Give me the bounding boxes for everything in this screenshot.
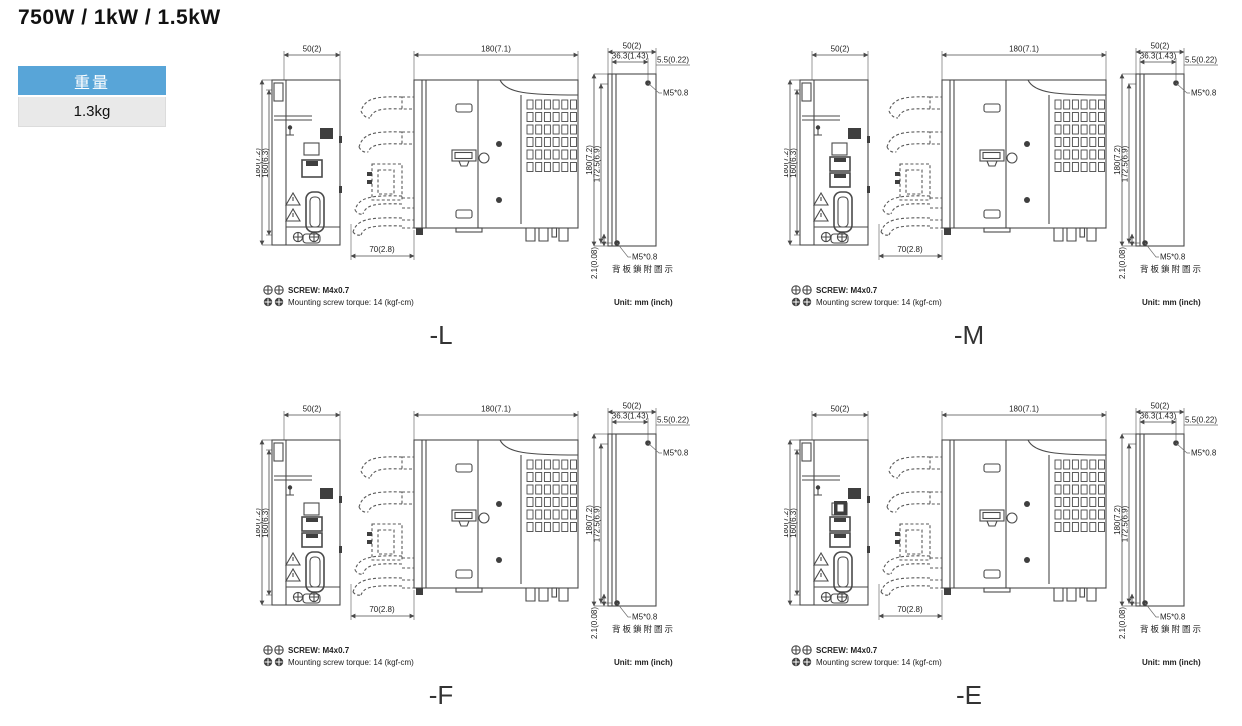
screw-spec-label-top: M5*0.8 xyxy=(663,89,689,98)
dim-side-depth: 180(7.1) xyxy=(1009,45,1039,54)
mounting-slot-bottom xyxy=(984,570,1000,578)
side-view: 180(7.1) 70(2.8) xyxy=(351,405,578,621)
torque-note: Mounting screw torque: 14 (kgf-cm) xyxy=(816,298,942,307)
ventilation-grid xyxy=(1055,460,1105,532)
usb-connector-icon xyxy=(848,488,861,499)
front-view: 50(2) 180(7.2) 160(6.3) xyxy=(256,45,342,246)
usb-connector-icon xyxy=(320,488,333,499)
io-connector xyxy=(306,552,324,592)
weight-table-value: 1.3kg xyxy=(18,97,166,127)
unit-note: Unit: mm (inch) xyxy=(614,298,673,307)
mounting-slot-bottom xyxy=(456,210,472,218)
back-view: 50(2) 36.3(1.43) 5.5(0.22) 180(7.2) 172.… xyxy=(1113,402,1218,640)
back-plate-note: 背板鎖附圖示 xyxy=(612,624,675,634)
ethernet-ports xyxy=(302,517,322,547)
screw-note: SCREW: M4x0.7 xyxy=(816,286,878,295)
side-connector xyxy=(980,510,1017,526)
screw-head-icon xyxy=(264,646,283,654)
dim-front-mount-height: 160(6.3) xyxy=(789,148,798,178)
mounting-slot-top xyxy=(984,464,1000,472)
ground-mark-icon xyxy=(816,125,820,129)
variant-label: -F xyxy=(429,680,454,710)
mounting-notes: SCREW: M4x0.7 Mounting screw torque: 14 … xyxy=(264,286,673,307)
ventilation-grid xyxy=(527,100,577,172)
variant-label: -E xyxy=(956,680,982,710)
page-title: 750W / 1kW / 1.5kW xyxy=(18,6,221,30)
encoder-connector xyxy=(831,234,848,243)
io-connector xyxy=(306,192,324,232)
screw-head-icon xyxy=(264,286,283,294)
unit-note: Unit: mm (inch) xyxy=(1142,298,1201,307)
dimension-panel-F: 50(2) 180(7.2) 160(6.3) xyxy=(256,398,740,716)
front-view: 50(2) 180(7.2) 160(6.3) xyxy=(784,45,870,246)
torque-screw-icon xyxy=(792,658,811,666)
dim-side-depth: 180(7.1) xyxy=(481,405,511,414)
dimension-drawing: 50(2) 180(7.2) 160(6.3) xyxy=(256,398,740,716)
dim-back-hole-span: 172.5(6.9) xyxy=(1121,505,1130,542)
dim-back-hole-x: 36.3(1.43) xyxy=(612,412,649,421)
back-view: 50(2) 36.3(1.43) 5.5(0.22) 180(7.2) 172.… xyxy=(1113,42,1218,280)
dim-back-hole-edge: 5.5(0.22) xyxy=(1185,56,1217,65)
cable-hoses xyxy=(353,97,414,235)
torque-note: Mounting screw torque: 14 (kgf-cm) xyxy=(288,298,414,307)
unit-note: Unit: mm (inch) xyxy=(614,658,673,667)
dim-back-hole-span: 172.5(6.9) xyxy=(1121,145,1130,182)
dim-back-hole-edge: 5.5(0.22) xyxy=(657,416,689,425)
weight-table: 重量 1.3kg xyxy=(18,66,166,127)
mounting-feet xyxy=(944,588,1096,601)
mounting-slot-top xyxy=(984,104,1000,112)
ventilation-grid xyxy=(527,460,577,532)
dim-back-hole-x: 36.3(1.43) xyxy=(1140,52,1177,61)
dimension-drawing: 50(2) 180(7.2) 160(6.3) xyxy=(784,38,1242,356)
dim-back-hole-edge: 5.5(0.22) xyxy=(1185,416,1217,425)
dim-back-hole-span: 172.5(6.9) xyxy=(593,145,602,182)
dim-back-hole-bottom: 2.1(0.08) xyxy=(1118,607,1127,639)
dim-back-hole-bottom: 2.1(0.08) xyxy=(1118,247,1127,279)
side-view: 180(7.1) 70(2.8) xyxy=(879,45,1106,261)
dimension-drawing: 50(2) 180(7.2) 160(6.3) xyxy=(784,398,1242,716)
back-view: 50(2) 36.3(1.43) 5.5(0.22) 180(7.2) 172.… xyxy=(585,42,690,280)
ethernet-ports xyxy=(830,157,850,187)
ground-mark-icon xyxy=(288,125,292,129)
dimension-panel-E: 50(2) 180(7.2) 160(6.3) xyxy=(784,398,1242,716)
dim-back-hole-x: 36.3(1.43) xyxy=(612,52,649,61)
mounting-slot-bottom xyxy=(984,210,1000,218)
variant-label: -M xyxy=(954,320,984,350)
screw-spec-label-bottom: M5*0.8 xyxy=(1160,613,1186,622)
ground-mark-icon xyxy=(816,485,820,489)
cable-hoses xyxy=(881,457,942,595)
display-window xyxy=(304,143,319,155)
dim-front-mount-height: 160(6.3) xyxy=(261,508,270,538)
screw-spec-label-top: M5*0.8 xyxy=(1191,449,1217,458)
screw-spec-label-bottom: M5*0.8 xyxy=(632,253,658,262)
torque-note: Mounting screw torque: 14 (kgf-cm) xyxy=(816,658,942,667)
back-plate-note: 背板鎖附圖示 xyxy=(1140,264,1203,274)
cable-hoses xyxy=(881,97,942,235)
mounting-feet xyxy=(416,228,568,241)
front-view: 50(2) 180(7.2) 160(6.3) xyxy=(784,405,870,606)
aux-connector xyxy=(834,501,847,515)
display-window xyxy=(832,143,847,155)
unit-note: Unit: mm (inch) xyxy=(1142,658,1201,667)
screw-note: SCREW: M4x0.7 xyxy=(288,286,350,295)
mounting-slot-top xyxy=(456,464,472,472)
side-connector xyxy=(452,150,489,166)
ethernet-port xyxy=(302,160,322,177)
screw-note: SCREW: M4x0.7 xyxy=(288,646,350,655)
dim-front-protrude: 70(2.8) xyxy=(897,245,923,254)
dimension-panel-M: 50(2) 180(7.2) 160(6.3) xyxy=(784,38,1242,356)
side-view: 180(7.1) 70(2.8) xyxy=(351,45,578,261)
screw-head-icon xyxy=(792,646,811,654)
screw-spec-label-top: M5*0.8 xyxy=(663,449,689,458)
dim-front-protrude: 70(2.8) xyxy=(369,245,395,254)
dim-front-width: 50(2) xyxy=(303,45,322,54)
dim-back-width: 50(2) xyxy=(1151,42,1170,51)
front-view: 50(2) 180(7.2) 160(6.3) xyxy=(256,405,342,606)
mounting-slot-top xyxy=(456,104,472,112)
display-window xyxy=(304,503,319,515)
screw-spec-label-bottom: M5*0.8 xyxy=(1160,253,1186,262)
screw-head-icon xyxy=(792,286,811,294)
weight-table-header: 重量 xyxy=(18,66,166,97)
dimension-drawings-page: 750W / 1kW / 1.5kW 重量 1.3kg 50(2) 180(7.… xyxy=(0,0,1242,726)
dimension-drawing: 50(2) 180(7.2) 160(6.3) xyxy=(256,38,740,356)
usb-connector-icon xyxy=(848,128,861,139)
side-view: 180(7.1) 70(2.8) xyxy=(879,405,1106,621)
dim-front-width: 50(2) xyxy=(831,405,850,414)
io-connector xyxy=(834,192,852,232)
dim-front-mount-height: 160(6.3) xyxy=(261,148,270,178)
dim-back-hole-bottom: 2.1(0.08) xyxy=(590,607,599,639)
mounting-feet xyxy=(944,228,1096,241)
dim-back-width: 50(2) xyxy=(623,402,642,411)
back-view: 50(2) 36.3(1.43) 5.5(0.22) 180(7.2) 172.… xyxy=(585,402,690,640)
encoder-connector xyxy=(303,594,320,603)
side-connector xyxy=(452,510,489,526)
torque-screw-icon xyxy=(792,298,811,306)
mounting-notes: SCREW: M4x0.7 Mounting screw torque: 14 … xyxy=(792,646,1201,667)
dim-front-protrude: 70(2.8) xyxy=(897,605,923,614)
ethernet-ports xyxy=(830,517,850,547)
dim-front-width: 50(2) xyxy=(831,45,850,54)
screw-spec-label-bottom: M5*0.8 xyxy=(632,613,658,622)
encoder-connector xyxy=(303,234,320,243)
mounting-notes: SCREW: M4x0.7 Mounting screw torque: 14 … xyxy=(792,286,1201,307)
mounting-notes: SCREW: M4x0.7 Mounting screw torque: 14 … xyxy=(264,646,673,667)
cable-hoses xyxy=(353,457,414,595)
ground-mark-icon xyxy=(288,485,292,489)
back-plate-note: 背板鎖附圖示 xyxy=(612,264,675,274)
dim-back-width: 50(2) xyxy=(623,42,642,51)
back-plate-note: 背板鎖附圖示 xyxy=(1140,624,1203,634)
ventilation-grid xyxy=(1055,100,1105,172)
dim-front-protrude: 70(2.8) xyxy=(369,605,395,614)
encoder-connector xyxy=(831,594,848,603)
dim-back-hole-bottom: 2.1(0.08) xyxy=(590,247,599,279)
torque-note: Mounting screw torque: 14 (kgf-cm) xyxy=(288,658,414,667)
dim-back-hole-x: 36.3(1.43) xyxy=(1140,412,1177,421)
side-connector xyxy=(980,150,1017,166)
dim-front-width: 50(2) xyxy=(303,405,322,414)
dim-side-depth: 180(7.1) xyxy=(1009,405,1039,414)
dim-side-depth: 180(7.1) xyxy=(481,45,511,54)
dimension-panel-L: 50(2) 180(7.2) 160(6.3) xyxy=(256,38,740,356)
mounting-slot-bottom xyxy=(456,570,472,578)
torque-screw-icon xyxy=(264,298,283,306)
dim-back-hole-edge: 5.5(0.22) xyxy=(657,56,689,65)
screw-spec-label-top: M5*0.8 xyxy=(1191,89,1217,98)
screw-note: SCREW: M4x0.7 xyxy=(816,646,878,655)
dim-back-hole-span: 172.5(6.9) xyxy=(593,505,602,542)
mounting-feet xyxy=(416,588,568,601)
usb-connector-icon xyxy=(320,128,333,139)
dim-back-width: 50(2) xyxy=(1151,402,1170,411)
torque-screw-icon xyxy=(264,658,283,666)
io-connector xyxy=(834,552,852,592)
variant-label: -L xyxy=(429,320,452,350)
dim-front-mount-height: 160(6.3) xyxy=(789,508,798,538)
